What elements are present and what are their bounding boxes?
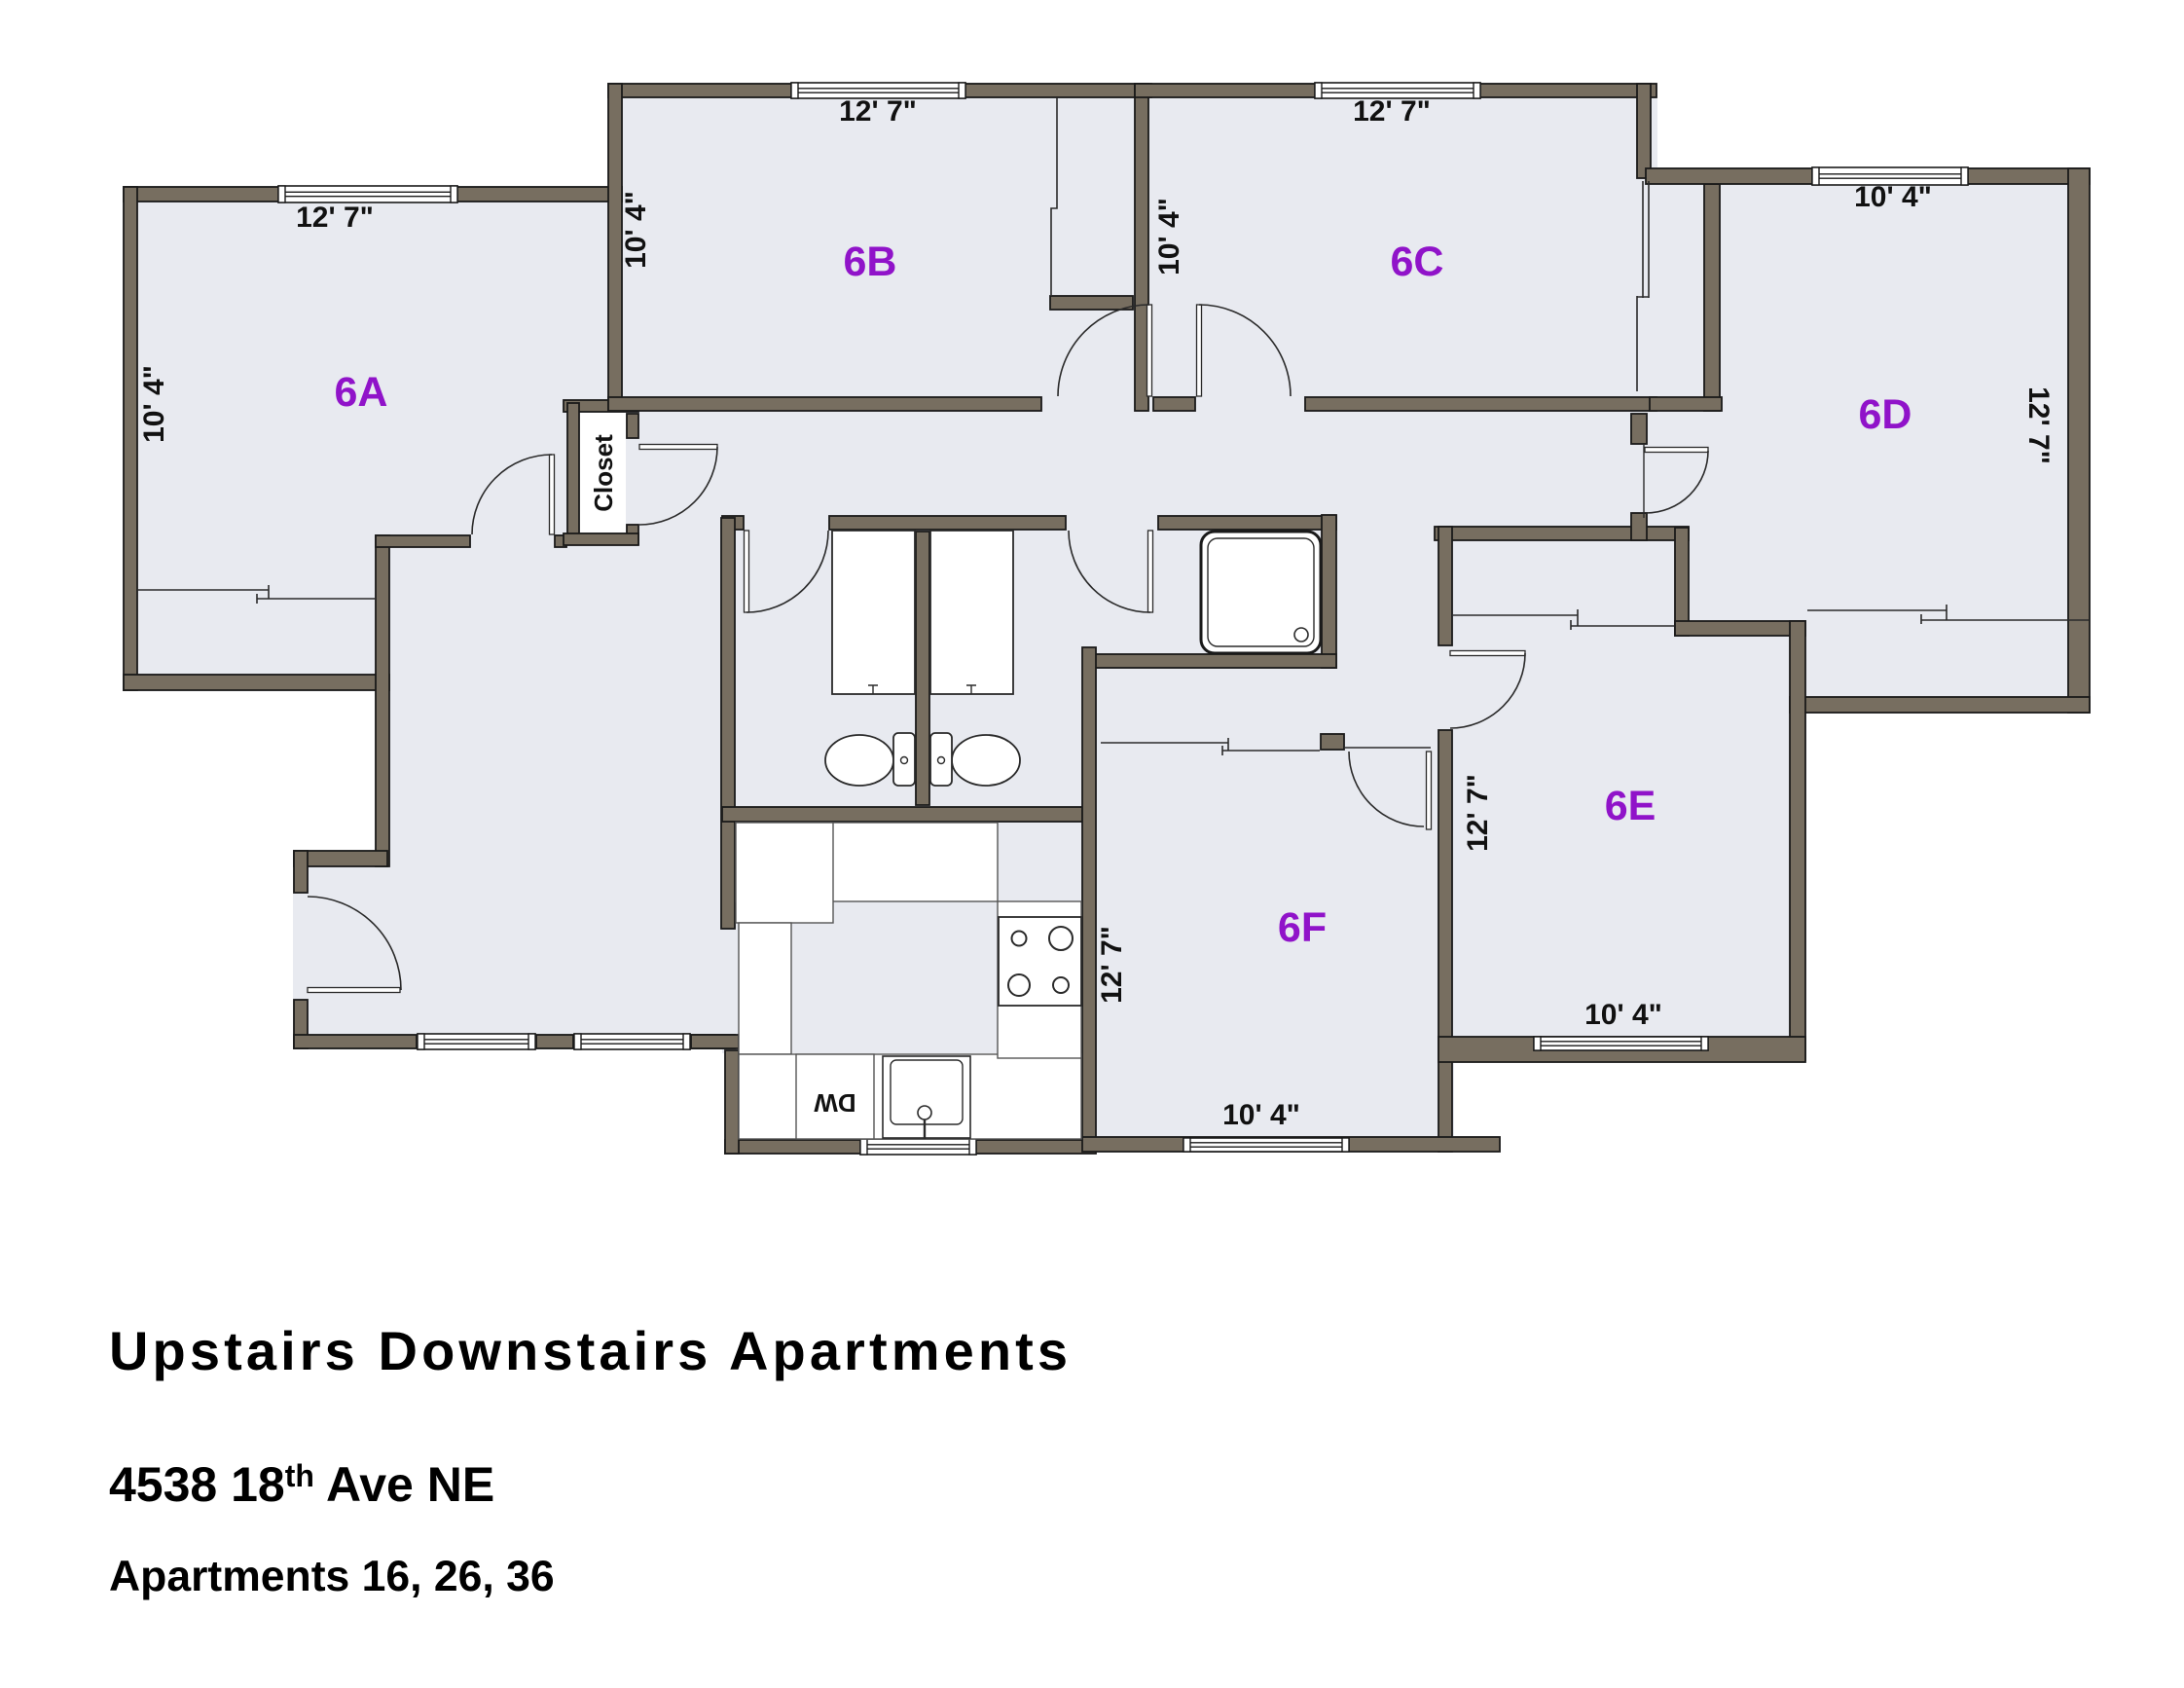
svg-text:6B: 6B xyxy=(844,239,897,285)
svg-text:Upstairs Downstairs Apartments: Upstairs Downstairs Apartments xyxy=(109,1320,1072,1381)
svg-text:12' 7": 12' 7" xyxy=(839,95,917,128)
svg-text:10' 4": 10' 4" xyxy=(138,365,170,443)
svg-text:Apartments 16, 26, 36: Apartments 16, 26, 36 xyxy=(109,1553,555,1600)
svg-text:12' 7": 12' 7" xyxy=(1353,95,1431,128)
svg-text:6C: 6C xyxy=(1391,239,1444,285)
svg-text:Closet: Closet xyxy=(589,434,618,512)
svg-text:12' 7": 12' 7" xyxy=(1096,926,1128,1004)
svg-text:10' 4": 10' 4" xyxy=(1854,181,1932,213)
svg-text:DW: DW xyxy=(814,1088,856,1118)
svg-text:6E: 6E xyxy=(1605,783,1656,829)
svg-text:10' 4": 10' 4" xyxy=(1584,999,1662,1031)
svg-text:6F: 6F xyxy=(1278,904,1327,951)
svg-text:10' 4": 10' 4" xyxy=(1153,198,1185,275)
svg-text:12' 7": 12' 7" xyxy=(1462,774,1494,852)
svg-text:12' 7": 12' 7" xyxy=(296,202,374,234)
svg-text:6D: 6D xyxy=(1859,391,1912,438)
svg-text:12' 7": 12' 7" xyxy=(2022,386,2055,464)
svg-text:10' 4": 10' 4" xyxy=(1222,1099,1300,1131)
svg-text:10' 4": 10' 4" xyxy=(620,191,652,269)
svg-text:6A: 6A xyxy=(335,369,388,416)
